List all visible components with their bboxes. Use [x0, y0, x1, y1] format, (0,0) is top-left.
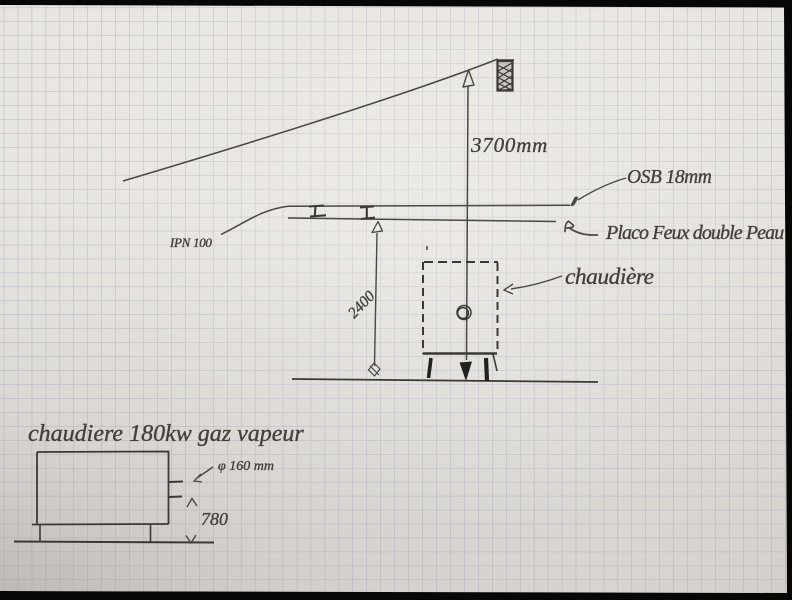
svg-text:OSB 18mm: OSB 18mm [627, 167, 712, 188]
svg-text:780: 780 [201, 509, 228, 529]
svg-text:IPN 100: IPN 100 [169, 235, 212, 250]
svg-text:chaudière: chaudière [565, 264, 654, 290]
svg-text:3700mm: 3700mm [470, 133, 548, 157]
svg-text:chaudiere 180kw gaz vapeur: chaudiere 180kw gaz vapeur [28, 421, 304, 447]
svg-text:Placo Feux double Peau: Placo Feux double Peau [605, 222, 784, 244]
svg-text:φ 160 mm: φ 160 mm [218, 459, 274, 474]
